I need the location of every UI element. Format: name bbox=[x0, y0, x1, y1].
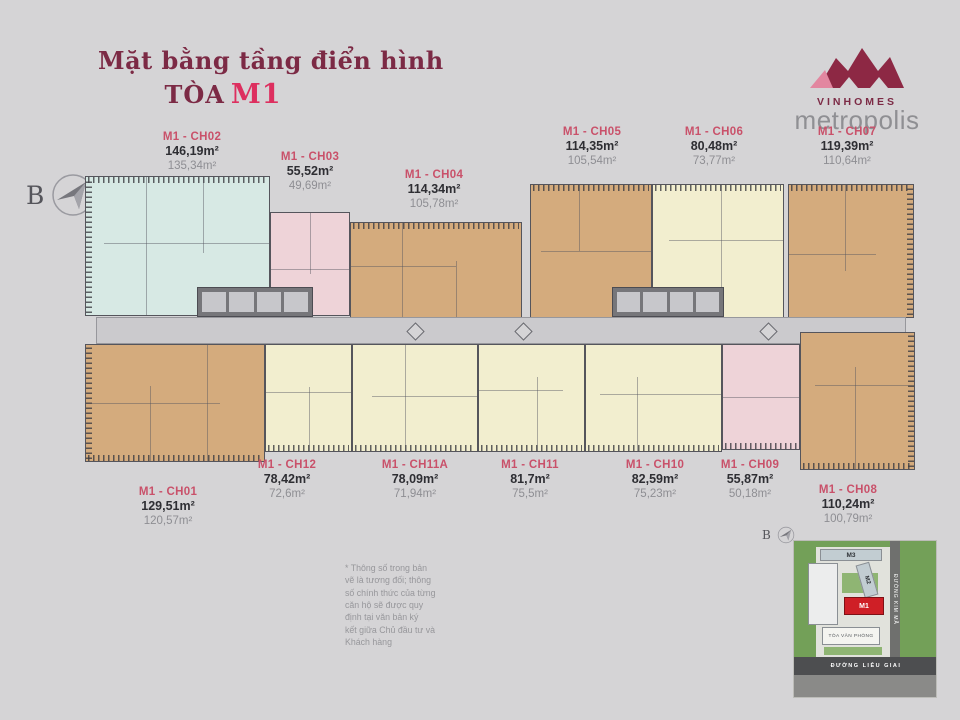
unit-label-ch11: M1 - CH11 81,7m² 75,5m² bbox=[501, 458, 559, 501]
balcony-hatch bbox=[588, 445, 719, 451]
unit-label-ch06: M1 - CH06 80,48m² 73,77m² bbox=[685, 125, 743, 168]
building-office: TÒA VĂN PHÒNG bbox=[822, 627, 880, 645]
unit-area-ch10 bbox=[585, 344, 722, 452]
unit-area-ch11a bbox=[352, 344, 478, 452]
room-divider bbox=[372, 396, 477, 397]
unit-label-ch07: M1 - CH07 119,39m² 110,64m² bbox=[818, 125, 876, 168]
elevator-core bbox=[197, 287, 313, 317]
room-divider bbox=[669, 240, 783, 241]
balcony-hatch bbox=[353, 223, 519, 229]
room-divider bbox=[271, 269, 349, 270]
unit-area-ch12 bbox=[265, 344, 352, 452]
elevator-core bbox=[612, 287, 724, 317]
balcony-hatch bbox=[908, 335, 914, 467]
room-divider bbox=[541, 251, 651, 252]
street-right-label: ĐƯỜNG KIM MÃ bbox=[890, 541, 900, 657]
floor-plan-page: Mặt bằng tầng điển hình TÒAM1 VINHOMES m… bbox=[0, 0, 960, 720]
room-divider bbox=[402, 223, 403, 317]
unit-label-ch05: M1 - CH05 114,35m² 105,54m² bbox=[563, 125, 621, 168]
room-divider bbox=[150, 386, 151, 461]
unit-label-ch01: M1 - CH01 129,51m² 120,57m² bbox=[139, 485, 197, 528]
balcony-hatch bbox=[355, 445, 475, 451]
minimap-compass-label: B bbox=[762, 528, 771, 542]
room-divider bbox=[266, 392, 351, 393]
room-divider bbox=[723, 397, 799, 398]
unit-area-ch11 bbox=[478, 344, 585, 452]
page-subtitle: TÒAM1 bbox=[98, 79, 348, 110]
vinhomes-metropolis-logo: VINHOMES metropolis bbox=[782, 40, 932, 136]
door-marker bbox=[406, 322, 424, 340]
building-m1-highlighted: M1 bbox=[844, 597, 884, 615]
unit-label-ch04: M1 - CH04 114,34m² 105,78m² bbox=[405, 168, 463, 211]
tower-prefix: TÒA bbox=[164, 80, 224, 109]
balcony-hatch bbox=[803, 463, 912, 469]
room-divider bbox=[815, 385, 914, 386]
room-divider bbox=[789, 254, 876, 255]
room-divider bbox=[86, 403, 220, 404]
balcony-hatch bbox=[725, 443, 797, 449]
unit-area-ch09 bbox=[722, 344, 800, 450]
unit-label-ch12: M1 - CH12 78,42m² 72,6m² bbox=[258, 458, 316, 501]
room-divider bbox=[351, 266, 456, 267]
balcony-hatch bbox=[86, 179, 92, 313]
door-marker bbox=[514, 322, 532, 340]
balcony-hatch bbox=[791, 185, 911, 191]
balcony-hatch bbox=[533, 185, 649, 191]
map-edge bbox=[794, 675, 937, 698]
balcony-hatch bbox=[907, 187, 913, 315]
green-area bbox=[900, 541, 937, 657]
balcony-hatch bbox=[655, 185, 781, 191]
room-divider bbox=[845, 185, 846, 271]
unit-area-ch04 bbox=[350, 222, 522, 318]
disclaimer-note: * Thông số trong bản vẽ là tương đối; th… bbox=[345, 562, 455, 648]
door-marker bbox=[759, 322, 777, 340]
room-divider bbox=[579, 185, 580, 251]
page-header: Mặt bằng tầng điển hình TÒAM1 bbox=[98, 46, 398, 110]
street-bottom-label: ĐƯỜNG LIỄU GIAI bbox=[794, 657, 937, 675]
unit-area-ch08 bbox=[800, 332, 915, 470]
unit-label-ch03: M1 - CH03 55,52m² 49,69m² bbox=[281, 150, 339, 193]
building-existing-tower bbox=[808, 563, 838, 625]
room-divider bbox=[310, 213, 311, 274]
central-corridor bbox=[96, 317, 906, 344]
room-divider bbox=[309, 387, 310, 451]
unit-area-ch01 bbox=[85, 344, 265, 462]
unit-label-ch02: M1 - CH02 146,19m² 135,34m² bbox=[163, 130, 221, 173]
room-divider bbox=[479, 390, 563, 391]
balcony-hatch bbox=[88, 455, 262, 461]
room-divider bbox=[855, 367, 856, 469]
green-area bbox=[824, 647, 882, 655]
unit-label-ch10: M1 - CH10 82,59m² 75,23m² bbox=[626, 458, 684, 501]
balcony-hatch bbox=[481, 445, 582, 451]
unit-area-ch07 bbox=[788, 184, 914, 318]
room-divider bbox=[456, 261, 457, 317]
room-divider bbox=[637, 377, 638, 451]
unit-label-ch09: M1 - CH09 55,87m² 50,18m² bbox=[721, 458, 779, 501]
site-minimap: M3 M2 M1 TÒA VĂN PHÒNG ĐƯỜNG KIM MÃ ĐƯỜN… bbox=[793, 540, 937, 698]
room-divider bbox=[405, 345, 406, 451]
unit-label-ch11a: M1 - CH11A 78,09m² 71,94m² bbox=[382, 458, 448, 501]
tower-name: M1 bbox=[231, 79, 282, 110]
room-divider bbox=[104, 243, 269, 244]
balcony-hatch bbox=[88, 177, 267, 183]
page-title: Mặt bằng tầng điển hình bbox=[98, 46, 398, 75]
building-m3: M3 bbox=[820, 549, 882, 561]
unit-label-ch08: M1 - CH08 110,24m² 100,79m² bbox=[819, 483, 877, 526]
room-divider bbox=[600, 394, 722, 395]
logo-mark-icon bbox=[798, 40, 916, 90]
room-divider bbox=[146, 177, 147, 315]
compass-label: B bbox=[26, 181, 44, 210]
room-divider bbox=[203, 177, 204, 253]
room-divider bbox=[537, 377, 538, 451]
minimap-compass: B bbox=[762, 526, 795, 544]
